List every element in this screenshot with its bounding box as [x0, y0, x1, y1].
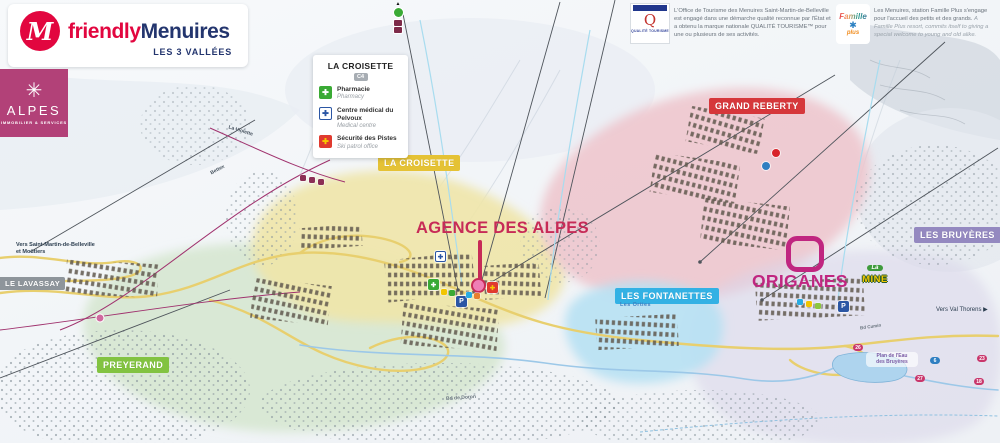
famille-plus-plus: plus — [847, 30, 859, 36]
brand-menuires: Menuires — [141, 20, 230, 43]
pharmacy-marker: ✚ — [428, 279, 439, 290]
arrow-up-icon: ▲ — [396, 2, 401, 7]
route-marker-26: 26 — [853, 344, 863, 351]
district-label-le-lavassay: LE LAVASSAY — [0, 277, 65, 290]
service-marker — [466, 292, 472, 298]
map-legend: LA CROISETTE C4 ✚ Pharmacie Pharmacy ✚ C… — [313, 55, 408, 158]
medical-centre-marker: ✚ — [435, 251, 446, 262]
service-marker — [441, 289, 447, 295]
famille-plus-notice: Les Menuires, station Famille Plus s'eng… — [874, 7, 996, 39]
point-marker — [762, 162, 770, 170]
lift-marker — [309, 177, 315, 183]
legend-label-fr: Centre médical du Pelvoux — [337, 107, 393, 122]
legend-grid-reference: C4 — [354, 73, 368, 81]
service-marker — [797, 299, 803, 305]
legend-item-pharmacy: ✚ Pharmacie Pharmacy — [319, 86, 402, 102]
route-marker-6: 6 — [930, 357, 940, 364]
route-marker-18: 18 — [974, 378, 984, 385]
origanes-highlight-frame — [786, 236, 824, 272]
legend-label-en: Ski patrol office — [337, 144, 397, 152]
direction-saint-martin-line2: et Moûtiers — [16, 249, 95, 256]
alpes-name: ALPES — [7, 103, 61, 118]
la-mine-mine: MINE — [858, 274, 892, 285]
origanes-label: ORIGANES — [752, 271, 848, 292]
lake-label-plan-de-leau: Plan de l'Eau des Bruyères — [866, 352, 918, 367]
qualite-caption: QUALITÉ TOURISME — [631, 29, 669, 33]
service-marker — [449, 290, 455, 296]
direction-saint-martin-line1: Vers Saint-Martin-de-Belleville — [16, 242, 95, 249]
service-marker — [815, 303, 821, 309]
lift-summit-markers: ▲ — [391, 2, 405, 33]
lift-summit-marker — [394, 27, 402, 33]
qualite-tourisme-logo: Q QUALITÉ TOURISME — [630, 3, 670, 44]
arrow-right-icon: ▶ — [983, 307, 988, 313]
route-marker-23: 23 — [977, 355, 987, 362]
famille-plus-notice-main: Les Menuires, station Famille Plus s'eng… — [874, 8, 987, 22]
famille-plus-logo: Famille ✱ plus — [836, 4, 870, 44]
la-mine-logo: La MINE — [858, 256, 892, 285]
legend-label-en: Pharmacy — [337, 94, 370, 102]
service-marker — [806, 301, 812, 307]
lift-marker — [300, 175, 306, 181]
brand-tagline: LES 3 VALLÉES — [153, 47, 232, 57]
ski-patrol-marker: ✚ — [487, 282, 498, 293]
lift-summit-marker — [394, 20, 402, 26]
district-label-les-bruyeres: LES BRUYÈRES — [914, 227, 1000, 243]
resort-map: LA CROISETTE GRAND REBERTY LES BRUYÈRES … — [0, 0, 1000, 443]
district-label-grand-reberty: GRAND REBERTY — [709, 98, 805, 114]
la-mine-la: La — [867, 265, 882, 271]
direction-val-thorens-text: Vers Val Thorens — [936, 307, 981, 313]
brand-friendly: friendly — [68, 20, 141, 43]
medical-cross-icon: ✚ — [319, 107, 332, 120]
famille-plus-star-icon: ✱ — [849, 21, 857, 30]
agence-des-alpes-label: AGENCE DES ALPES — [416, 219, 589, 238]
lift-summit-green-marker — [394, 8, 403, 17]
friendly-menuires-logo: M friendlyMenuires LES 3 VALLÉES — [8, 4, 248, 67]
direction-val-thorens: Vers Val Thorens ▶ — [936, 306, 988, 313]
parking-marker: P — [456, 296, 467, 307]
route-marker-27: 27 — [915, 375, 925, 382]
legend-label-fr: Sécurité des Pistes — [337, 135, 397, 142]
agence-location-marker — [471, 278, 486, 293]
legend-label-fr: Pharmacie — [337, 86, 370, 93]
menuires-m-icon: M — [20, 11, 60, 51]
qualite-q-icon: Q — [644, 11, 656, 29]
legend-item-ski-patrol: ✚ Sécurité des Pistes Ski patrol office — [319, 135, 402, 151]
qualite-tourisme-notice: L'Office de Tourisme des Menuires Saint-… — [674, 7, 832, 39]
ski-patrol-cross-icon: ✚ — [319, 135, 332, 148]
alpes-star-icon: ✳ — [26, 81, 43, 101]
service-marker — [474, 293, 480, 299]
point-marker — [772, 149, 780, 157]
alpes-subtitle: IMMOBILIER & SERVICES — [1, 120, 67, 125]
direction-saint-martin: Vers Saint-Martin-de-Belleville et Moûti… — [16, 242, 95, 256]
alpes-agency-logo: ✳ ALPES IMMOBILIER & SERVICES — [0, 69, 68, 137]
lift-marker — [318, 179, 324, 185]
brand-wordmark: friendlyMenuires — [68, 20, 230, 44]
lake-label-line2: des Bruyères — [866, 359, 918, 365]
legend-title: LA CROISETTE — [319, 61, 402, 71]
area-label-les-orties: Les Orties — [620, 302, 651, 308]
pharmacy-cross-icon: ✚ — [319, 86, 332, 99]
parking-marker: P — [838, 301, 849, 312]
legend-label-en: Medical centre — [337, 123, 402, 131]
legend-item-medical-centre: ✚ Centre médical du Pelvoux Medical cent… — [319, 107, 402, 131]
district-label-preyerand: PREYERAND — [97, 357, 169, 373]
